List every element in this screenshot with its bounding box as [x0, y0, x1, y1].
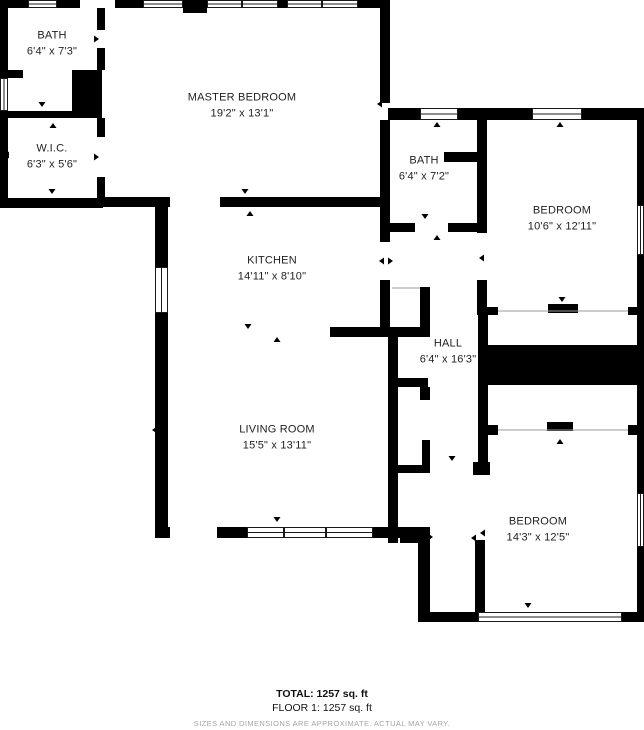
wall-segment	[217, 527, 247, 538]
wall-segment	[155, 198, 168, 267]
wall-segment	[330, 327, 430, 337]
wall-segment	[628, 425, 637, 435]
wall-segment	[0, 8, 8, 70]
room-dims: 6'4" x 16'3"	[420, 352, 477, 368]
wall-segment	[478, 315, 488, 345]
wall-segment	[0, 70, 23, 78]
room-label-bedroom-2: BEDROOM 14'3" x 12'5"	[507, 515, 570, 546]
wall-segment	[487, 307, 498, 315]
wall-segment	[115, 0, 143, 8]
wall-segment	[473, 462, 490, 475]
wall-segment	[388, 108, 420, 120]
room-name: BATH	[399, 154, 449, 170]
door-tick	[94, 36, 99, 43]
room-dims: 6'3" x 5'6"	[27, 157, 77, 173]
wall-segment	[57, 0, 80, 8]
wall-segment	[448, 223, 480, 232]
door-tick	[49, 189, 56, 194]
door-tick	[471, 535, 476, 542]
wall-segment	[278, 0, 287, 8]
wall-segment	[155, 527, 170, 538]
room-label-bath-2: BATH 6'4" x 7'2"	[399, 154, 449, 185]
door-tick	[247, 211, 254, 216]
door-tick	[379, 258, 384, 265]
room-dims: 15'5" x 13'11"	[239, 438, 315, 454]
window	[248, 527, 373, 538]
room-name: LIVING ROOM	[239, 423, 315, 439]
window	[479, 613, 622, 622]
door-tick	[525, 603, 532, 608]
floor-area-text: FLOOR 1: 1257 sq. ft	[0, 702, 644, 714]
wall-segment	[155, 313, 168, 527]
door-tick	[449, 456, 456, 461]
door-tick	[557, 439, 564, 444]
door-tick	[479, 255, 484, 262]
window	[638, 206, 644, 255]
wall-segment	[420, 287, 430, 330]
wall-segment	[420, 387, 430, 400]
wall-segment	[477, 120, 487, 233]
wall-segment	[622, 612, 644, 622]
room-dims: 6'4" x 7'3"	[27, 44, 77, 60]
door-tick	[50, 123, 57, 128]
door-tick	[388, 258, 393, 265]
room-dims: 6'4" x 7'2"	[399, 169, 449, 185]
wall-segment	[478, 385, 488, 462]
window	[421, 109, 458, 120]
wall-segment	[220, 197, 390, 207]
wall-segment	[388, 337, 398, 543]
door-tick	[434, 122, 441, 127]
wall-segment	[628, 307, 637, 315]
room-label-living-room: LIVING ROOM 15'5" x 13'11"	[239, 423, 315, 454]
window	[533, 109, 582, 120]
room-dims: 14'3" x 12'5"	[507, 530, 570, 546]
room-label-hall: HALL 6'4" x 16'3"	[420, 337, 477, 368]
wall-segment	[97, 177, 105, 198]
floor-plan: BATH 6'4" x 7'3" W.I.C. 6'3" x 5'6" MAST…	[0, 0, 644, 730]
wall-segment	[477, 280, 487, 315]
wall-segment	[373, 527, 430, 538]
wall-segment	[637, 547, 644, 622]
room-dims: 10'6" x 12'11"	[528, 219, 596, 235]
wall-segment	[478, 345, 644, 385]
room-label-wic: W.I.C. 6'3" x 5'6"	[27, 142, 77, 173]
wall-segment	[398, 465, 430, 473]
disclaimer-text: SIZES AND DIMENSIONS ARE APPROXIMATE. AC…	[0, 719, 644, 728]
floor-plan-drawing	[0, 0, 644, 730]
wall-segment	[422, 440, 430, 465]
room-label-bedroom-1: BEDROOM 10'6" x 12'11"	[528, 204, 596, 235]
door-tick	[422, 214, 429, 219]
room-dims: 19'2" x 13'1"	[188, 106, 297, 122]
room-name: BATH	[27, 29, 77, 45]
door-tick	[242, 189, 249, 194]
wall-segment	[637, 385, 644, 493]
wall-segment	[97, 48, 105, 70]
door-tick	[480, 530, 485, 537]
wall-segment	[637, 255, 644, 345]
door-tick	[434, 235, 441, 240]
room-label-bath-1: BATH 6'4" x 7'3"	[27, 29, 77, 60]
door-tick	[274, 337, 281, 342]
door-tick	[377, 101, 382, 108]
wall-segment	[637, 108, 644, 205]
wall-segment	[380, 120, 390, 242]
room-label-kitchen: KITCHEN 14'11" x 8'10"	[238, 254, 306, 285]
room-name: HALL	[420, 337, 477, 353]
wall-segment	[0, 198, 103, 208]
door-tick	[94, 154, 99, 161]
room-dims: 14'11" x 8'10"	[238, 269, 306, 285]
wall-segment	[418, 543, 430, 622]
door-tick	[428, 534, 433, 541]
wall-segment	[398, 378, 428, 387]
window	[1, 79, 8, 111]
wall-segment	[183, 0, 207, 13]
window	[638, 494, 644, 547]
window	[29, 1, 57, 8]
window	[288, 0, 358, 8]
window	[156, 268, 168, 313]
door-tick	[39, 102, 46, 107]
window	[144, 1, 183, 8]
wall-segment	[475, 540, 485, 612]
wall-segment	[488, 425, 498, 435]
wall-segment	[72, 70, 102, 118]
door-tick	[557, 122, 564, 127]
door-tick	[152, 427, 157, 434]
wall-segment	[0, 0, 28, 8]
wall-segment	[0, 111, 72, 118]
room-name: BEDROOM	[507, 515, 570, 531]
room-name: KITCHEN	[238, 254, 306, 270]
room-name: W.I.C.	[27, 142, 77, 158]
door-tick	[559, 297, 566, 302]
wall-segment	[97, 118, 105, 137]
wall-segment	[458, 108, 532, 120]
door-tick	[245, 324, 252, 329]
wall-segment	[548, 304, 578, 313]
door-tick	[274, 517, 281, 522]
total-area-text: TOTAL: 1257 sq. ft	[0, 688, 644, 700]
window	[208, 0, 278, 8]
room-name: BEDROOM	[528, 204, 596, 220]
wall-segment	[582, 108, 644, 120]
wall-segment	[380, 0, 390, 103]
room-name: MASTER BEDROOM	[188, 91, 297, 107]
room-label-master-bedroom: MASTER BEDROOM 19'2" x 13'1"	[188, 91, 297, 122]
